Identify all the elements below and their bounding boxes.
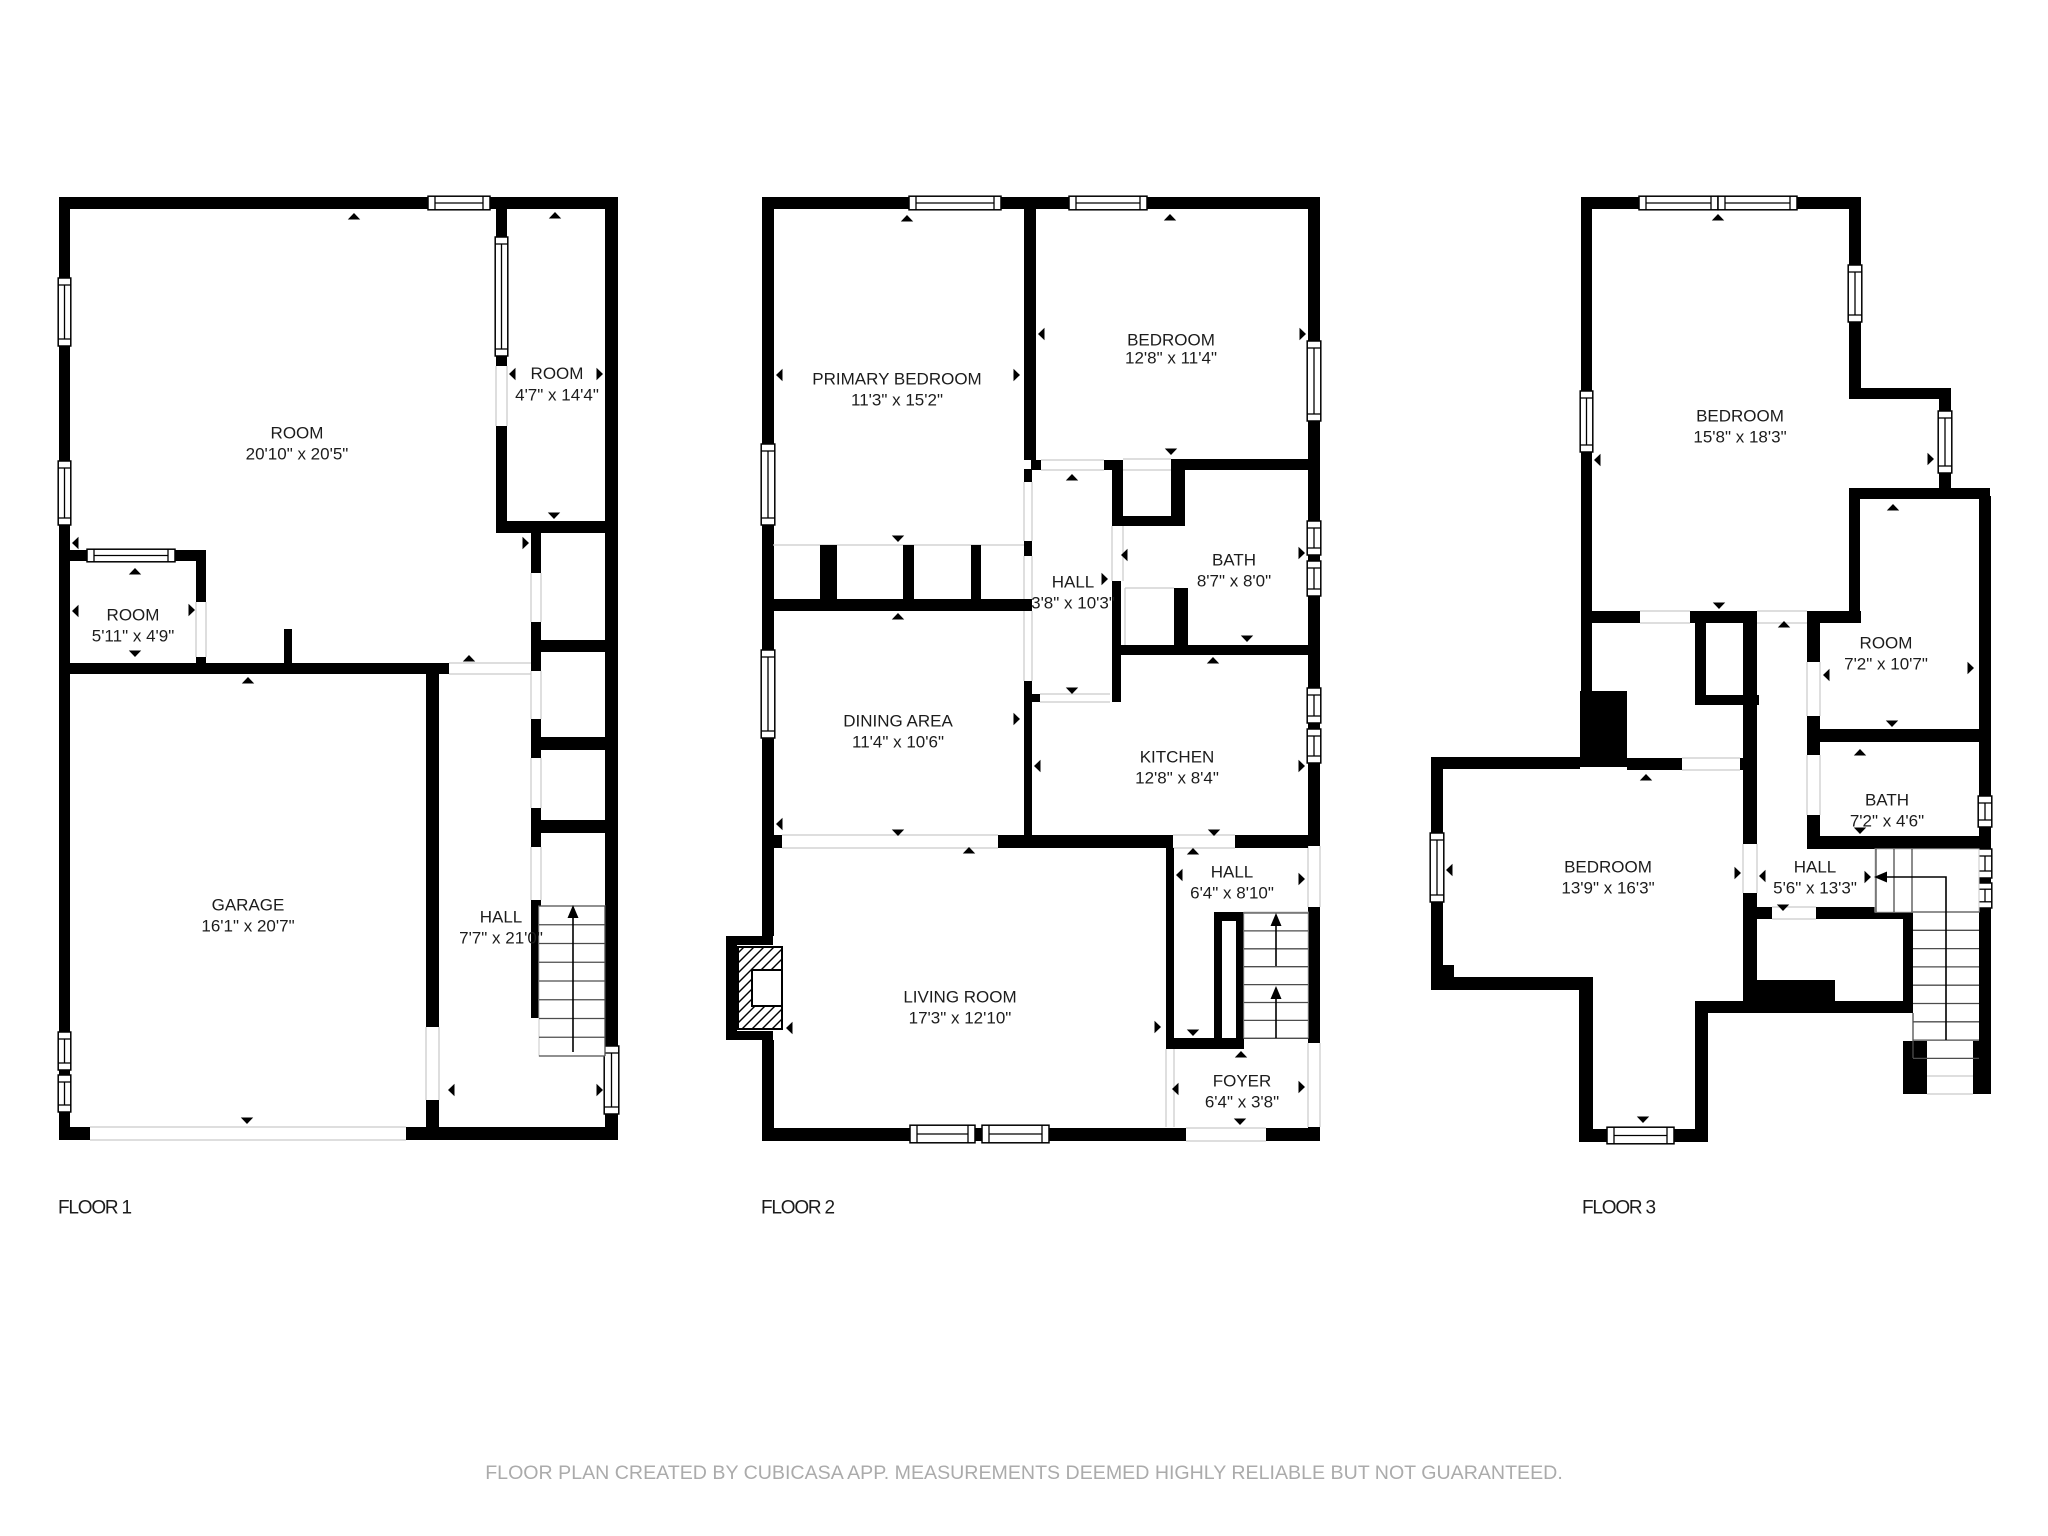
svg-text:GARAGE: GARAGE [212,896,285,915]
svg-text:BEDROOM: BEDROOM [1127,331,1215,350]
svg-text:PRIMARY BEDROOM: PRIMARY BEDROOM [812,370,981,389]
svg-text:7'2" x 4'6": 7'2" x 4'6" [1850,812,1924,831]
svg-text:FLOOR 1: FLOOR 1 [58,1198,132,1219]
svg-text:ROOM: ROOM [1860,634,1913,653]
svg-text:HALL: HALL [480,908,523,927]
svg-text:17'3" x 12'10": 17'3" x 12'10" [909,1009,1012,1028]
svg-text:FOYER: FOYER [1213,1072,1272,1091]
svg-text:KITCHEN: KITCHEN [1140,748,1215,767]
svg-text:16'1" x 20'7": 16'1" x 20'7" [201,917,294,936]
svg-text:20'10" x 20'5": 20'10" x 20'5" [246,445,349,464]
svg-text:DINING AREA: DINING AREA [843,712,953,731]
svg-text:7'2" x 10'7": 7'2" x 10'7" [1844,655,1928,674]
svg-text:6'4" x 8'10": 6'4" x 8'10" [1190,884,1274,903]
svg-text:HALL: HALL [1052,573,1095,592]
svg-text:8'7" x 8'0": 8'7" x 8'0" [1197,572,1271,591]
svg-text:11'4" x 10'6": 11'4" x 10'6" [852,733,944,752]
svg-text:4'7" x 14'4": 4'7" x 14'4" [515,385,599,404]
svg-text:3'8" x 10'3": 3'8" x 10'3" [1031,594,1115,613]
svg-text:7'7" x 21'0": 7'7" x 21'0" [459,929,543,948]
svg-text:12'8" x 11'4": 12'8" x 11'4" [1125,349,1217,368]
svg-text:FLOOR PLAN CREATED BY CUBICASA: FLOOR PLAN CREATED BY CUBICASA APP. MEAS… [485,1462,1563,1484]
svg-text:FLOOR 3: FLOOR 3 [1582,1198,1656,1219]
svg-text:LIVING ROOM: LIVING ROOM [903,988,1016,1007]
svg-text:HALL: HALL [1794,858,1837,877]
svg-text:11'3" x 15'2": 11'3" x 15'2" [851,391,943,410]
svg-text:ROOM: ROOM [531,364,584,383]
svg-text:6'4" x 3'8": 6'4" x 3'8" [1205,1093,1279,1112]
svg-text:ROOM: ROOM [107,606,160,625]
svg-text:5'11" x 4'9": 5'11" x 4'9" [92,627,175,646]
svg-text:15'8" x 18'3": 15'8" x 18'3" [1693,428,1786,447]
svg-text:BEDROOM: BEDROOM [1696,407,1784,426]
svg-text:13'9" x 16'3": 13'9" x 16'3" [1561,879,1654,898]
svg-text:FLOOR 2: FLOOR 2 [761,1198,835,1219]
svg-text:12'8" x 8'4": 12'8" x 8'4" [1135,769,1219,788]
svg-text:HALL: HALL [1211,863,1254,882]
svg-text:5'6" x 13'3": 5'6" x 13'3" [1773,879,1857,898]
svg-text:BATH: BATH [1865,791,1909,810]
svg-text:BATH: BATH [1212,551,1256,570]
svg-text:ROOM: ROOM [271,424,324,443]
svg-text:BEDROOM: BEDROOM [1564,858,1652,877]
